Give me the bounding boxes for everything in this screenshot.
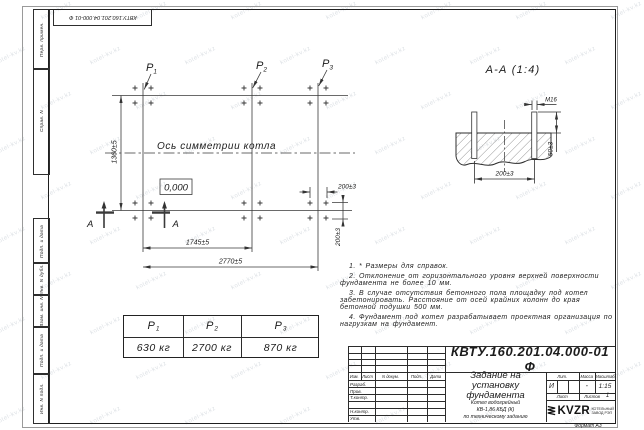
- tb-line: [407, 346, 408, 422]
- role-tcontrol: Т.контр.: [350, 395, 374, 401]
- rev-header-list: Лист: [361, 372, 375, 380]
- role-checked: Пров.: [350, 388, 374, 394]
- logo-cell: KVZR КОТЕЛЬНЫЙ ЗАВОД РЭП: [547, 401, 614, 422]
- rev-header-izm: Изм.: [348, 372, 361, 380]
- mass-header: Масса: [579, 372, 596, 380]
- tb-line: [568, 380, 569, 394]
- format-note: Формат А3: [556, 423, 620, 429]
- tb-line: [348, 365, 445, 366]
- drawing-page: kotel-kv.kzkotel-kv.kzkotel-kv.kzkotel-k…: [0, 0, 644, 430]
- mass-value: -: [579, 381, 596, 392]
- tb-line: [348, 353, 445, 354]
- tb-line: [348, 401, 445, 402]
- role-developed: Разраб.: [350, 381, 374, 387]
- sheets-label: Листов: [584, 394, 600, 399]
- lit-value: И: [546, 381, 557, 392]
- tb-line: [375, 346, 376, 422]
- tb-line: [427, 346, 428, 422]
- tb-line: [348, 359, 445, 360]
- doc-title: Задание на установку фундамента: [446, 373, 545, 400]
- sheet-label: Лист: [546, 393, 579, 399]
- product-name: Котел водогрейный КВ-1,86 КБД (К) по тех…: [446, 400, 545, 421]
- logo-name: KVZR: [557, 405, 590, 417]
- rev-header-sign: Подп.: [407, 372, 427, 380]
- tb-line: [348, 346, 349, 422]
- sheets-value: 1: [606, 393, 609, 399]
- scale-header: Масштаб: [595, 372, 615, 380]
- tb-line: [557, 380, 558, 394]
- title-block: КВТУ.160.201.04.000-01 Ф Задание на уста…: [0, 0, 644, 430]
- sheets-cell: Листов 1: [579, 393, 616, 399]
- kvzr-spring-icon: [547, 405, 556, 417]
- role-ncontrol: Н.контр.: [350, 409, 374, 415]
- scale-value: 1:15: [595, 381, 615, 392]
- logo-subtitle: КОТЕЛЬНЫЙ ЗАВОД РЭП: [591, 407, 614, 415]
- lit-header: Лит.: [546, 372, 579, 380]
- rev-header-date: Дата: [427, 372, 446, 380]
- rev-header-doc: N докум.: [375, 372, 407, 380]
- role-approved: Утв.: [350, 416, 374, 422]
- doc-number: КВТУ.160.201.04.000-01 Ф: [446, 347, 614, 371]
